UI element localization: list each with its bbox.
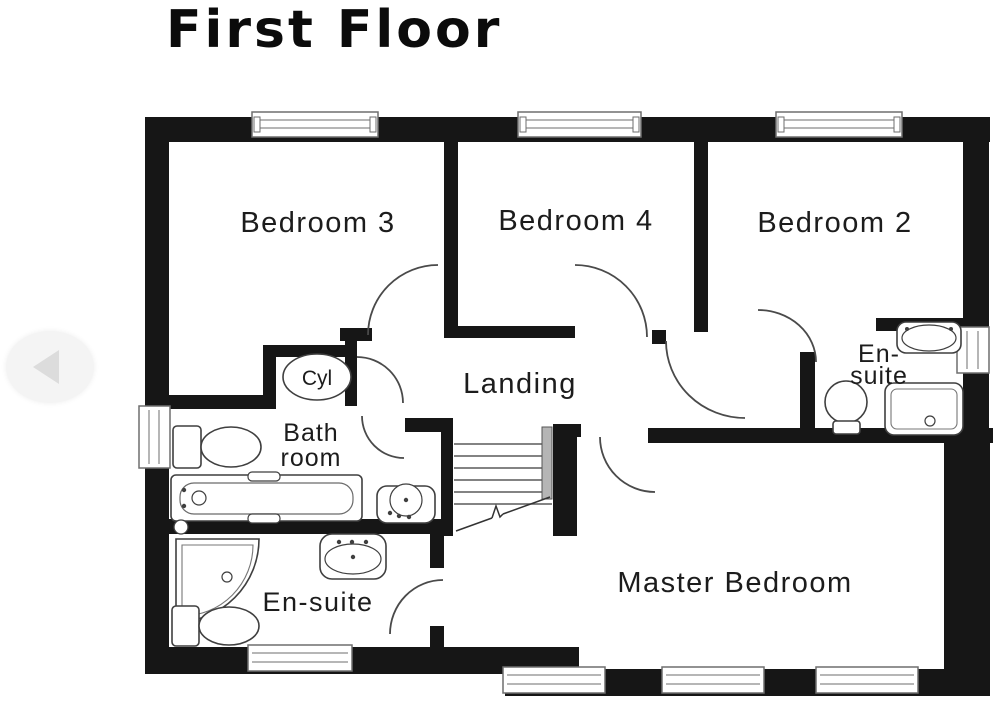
bedroom3-label: Bedroom 3 bbox=[240, 207, 395, 239]
toilet bbox=[172, 606, 259, 646]
bedroom2-label: Bedroom 2 bbox=[757, 207, 912, 239]
door-arc-bedroom2 bbox=[666, 341, 745, 418]
window bbox=[139, 406, 170, 468]
wall bbox=[145, 117, 169, 674]
page-title: First Floor bbox=[166, 0, 766, 62]
divider-detail bbox=[174, 520, 188, 534]
landing-label: Landing bbox=[463, 368, 577, 400]
ensuite-top-label-line2: suite bbox=[850, 362, 908, 390]
toilet bbox=[173, 426, 261, 468]
cylinder-label: Cyl bbox=[302, 367, 332, 390]
wall bbox=[553, 424, 577, 536]
pedestal-sink bbox=[320, 534, 386, 579]
floorplan-canvas: Bedroom 3 Bedroom 4 Bedroom 2 Landing Cy… bbox=[0, 0, 1000, 696]
previous-image-button[interactable] bbox=[6, 331, 94, 403]
stair-rail bbox=[542, 427, 552, 499]
left-arrow-icon bbox=[33, 350, 59, 384]
door-arc-master bbox=[600, 437, 655, 492]
bath-grip bbox=[248, 472, 280, 481]
wall bbox=[430, 626, 444, 658]
window bbox=[518, 112, 641, 137]
window bbox=[252, 112, 378, 137]
wash-basin bbox=[377, 484, 435, 523]
wall bbox=[800, 352, 815, 443]
staircase bbox=[454, 427, 552, 531]
wall bbox=[444, 140, 458, 338]
wall bbox=[963, 117, 989, 445]
window bbox=[503, 667, 605, 693]
door-arc-bathroom bbox=[362, 416, 404, 458]
bathroom-label-line2: room bbox=[281, 444, 342, 472]
window bbox=[248, 645, 352, 671]
ensuite-bottom-label: En-suite bbox=[262, 587, 373, 617]
wall bbox=[447, 326, 575, 338]
wall bbox=[652, 330, 666, 344]
wall bbox=[168, 395, 276, 409]
door-arc-ensuite-bottom bbox=[390, 580, 443, 634]
wall bbox=[944, 438, 990, 696]
shower-tray bbox=[885, 383, 963, 435]
window bbox=[662, 667, 764, 693]
bedroom4-label: Bedroom 4 bbox=[498, 205, 653, 237]
door-arc-bedroom4 bbox=[575, 265, 647, 337]
bath bbox=[171, 472, 362, 523]
wall bbox=[694, 140, 708, 332]
wall bbox=[441, 424, 453, 536]
window bbox=[776, 112, 902, 137]
window bbox=[816, 667, 918, 693]
door-arc-cylinder bbox=[357, 357, 403, 403]
wall bbox=[430, 534, 444, 568]
wash-basin bbox=[897, 322, 961, 353]
bathroom-label-line1: Bath bbox=[283, 419, 338, 447]
door-arc-bedroom3 bbox=[368, 265, 438, 335]
master-bedroom-label: Master Bedroom bbox=[617, 567, 852, 599]
bath-grip bbox=[248, 514, 280, 523]
